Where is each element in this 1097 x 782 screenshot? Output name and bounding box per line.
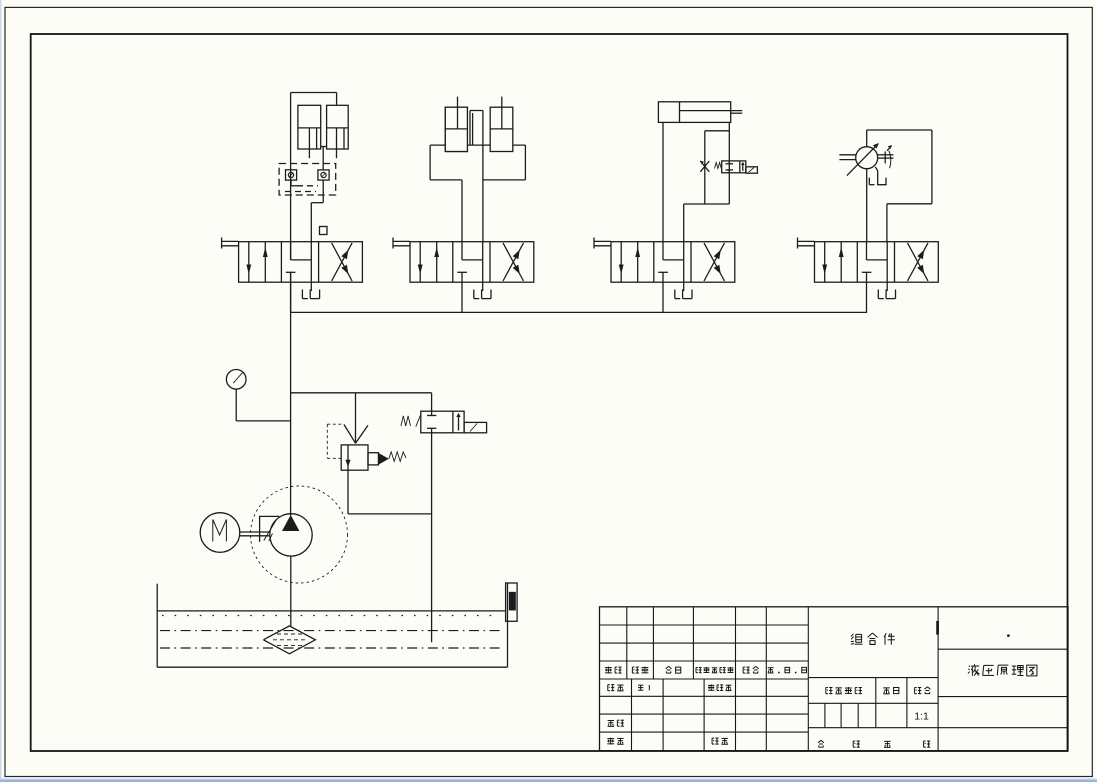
svg-text:1:1: 1:1: [914, 711, 929, 723]
